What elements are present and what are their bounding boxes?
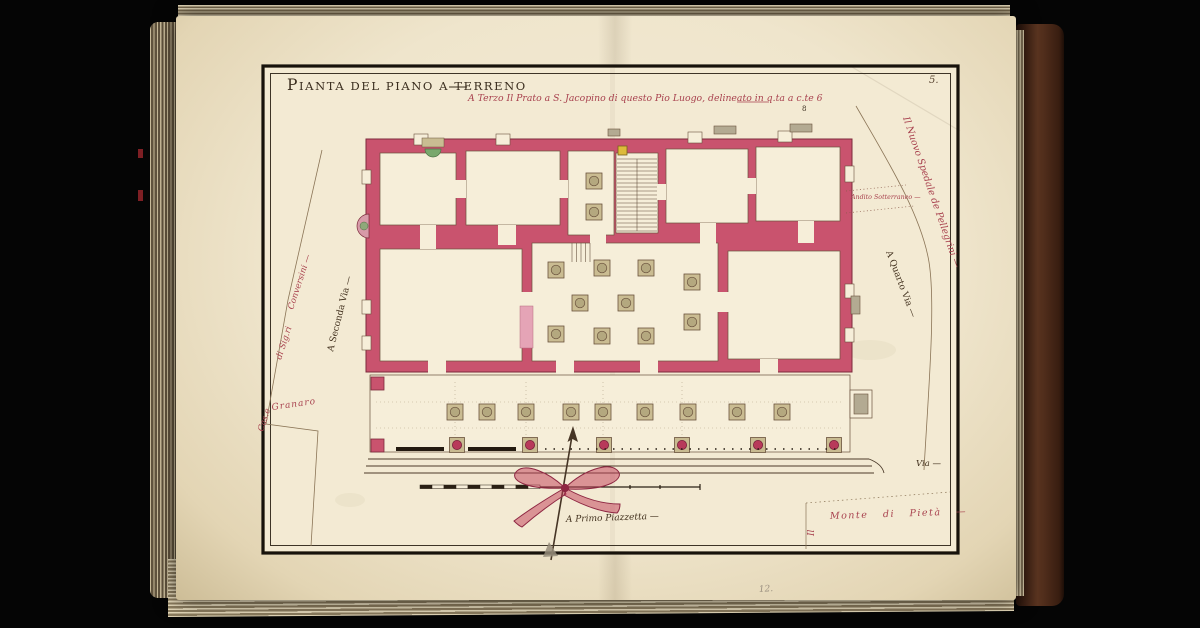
pink-passage: [520, 306, 533, 348]
portico: [370, 375, 872, 453]
plate-title: PIANTA DEL PIANO A TERRENO: [287, 76, 527, 94]
pencil-folio-number: 12.: [759, 584, 774, 595]
photograph-of-open-book: PIANTA DEL PIANO A TERRENO A Terzo Il Pr…: [0, 0, 1200, 628]
apse-backing: [422, 138, 444, 147]
left-niche-basin: [360, 222, 368, 230]
label-andito: Andito Sotterraneo —: [850, 194, 921, 201]
plate-caption: A Terzo Il Prato a S. Jacopino di questo…: [467, 93, 823, 104]
ink-mark: 8: [802, 105, 806, 113]
building-plan: [357, 124, 884, 473]
gold-marker: [618, 146, 627, 155]
label-monte-prefix: Il: [807, 529, 817, 537]
page-number: 5.: [929, 75, 939, 86]
paper-stain: [335, 493, 365, 507]
facade-door-bar: [468, 447, 516, 451]
label-via: Via —: [916, 459, 941, 469]
facade-door-bar: [396, 447, 444, 451]
floor-plan-plate: PIANTA DEL PIANO A TERRENO A Terzo Il Pr…: [0, 0, 1200, 628]
